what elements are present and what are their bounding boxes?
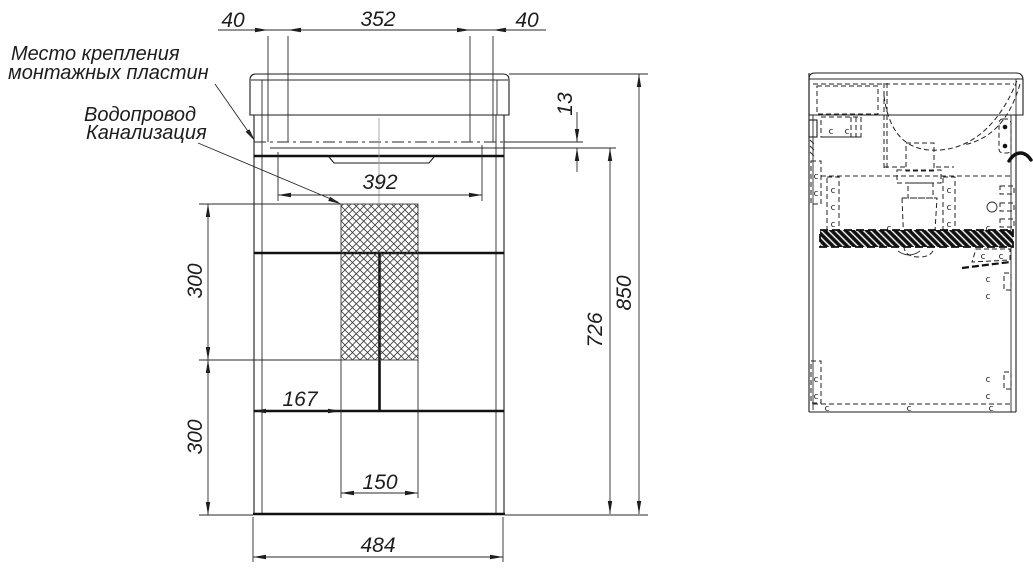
basin-bowl-hidden-contour: [817, 78, 1020, 170]
screw-mark: c: [824, 404, 829, 414]
screw-mark: c: [813, 189, 818, 199]
vanity-technical-drawing-page: 40 352 40 392 13 300 300 726 850 167 150…: [0, 0, 1033, 569]
dim-top-margin-left: 40: [221, 9, 245, 32]
plumbing-service-zone: [341, 204, 418, 498]
screw-mark: c: [988, 404, 993, 414]
dim-top-margin-right: 40: [515, 9, 539, 32]
dim-overall-height: 850: [613, 275, 636, 310]
screw-mark: c: [998, 252, 1003, 262]
label-plumbing-line2: Канализация: [86, 122, 207, 144]
screw-mark: c: [985, 375, 990, 385]
cam-lock: [987, 202, 997, 212]
screw-mark: c: [980, 252, 985, 262]
dim-service-upper: 300: [184, 263, 207, 298]
dim-opening-width: 392: [362, 171, 397, 194]
label-mounting-plates-line2: монтажных пластин: [8, 62, 209, 84]
screw-mark: c: [830, 186, 835, 196]
screw-mark: c: [985, 275, 990, 285]
drawer-slide-band: c c: [820, 230, 1013, 268]
screw-mark: c: [830, 203, 835, 213]
leader-mounting-plates: [215, 84, 252, 137]
hatched-area: [341, 204, 418, 360]
front-view: [250, 74, 616, 514]
leader-plumbing: [198, 143, 338, 202]
screw-mark: c: [813, 172, 818, 182]
dim-carcass-height: 726: [584, 312, 607, 347]
screw-mark: c: [946, 220, 951, 230]
side-view: c c c c c c c c c: [809, 73, 1031, 414]
screw-mark: c: [813, 375, 818, 385]
screw-mark: c: [828, 127, 833, 137]
dim-service-width: 150: [362, 471, 397, 494]
screw-mark: c: [946, 203, 951, 213]
dim-service-lower: 300: [184, 419, 207, 454]
screw-mark: c: [830, 220, 835, 230]
hook-clip: [1009, 153, 1031, 161]
dim-basin-drop: 13: [554, 92, 577, 116]
lower-fasteners: c c c c c c c c c: [811, 273, 1011, 414]
side-basin-slab: [809, 73, 1023, 115]
screw-mark: c: [985, 392, 990, 402]
handle-recess: [329, 157, 434, 163]
screw-mark: c: [985, 292, 990, 302]
technical-drawing-canvas: 40 352 40 392 13 300 300 726 850 167 150…: [0, 0, 1033, 569]
screw-mark: c: [844, 127, 849, 137]
screw-mark: c: [813, 392, 818, 402]
screw-mark: c: [906, 404, 911, 414]
screw-mark: c: [946, 186, 951, 196]
dim-left-offset: 167: [282, 388, 318, 411]
cabinet-body: [253, 115, 616, 514]
callout-labels: Место крепления монтажных пластин Водопр…: [8, 43, 338, 202]
dim-overall-width: 484: [360, 534, 395, 557]
dim-top-span: 352: [360, 8, 395, 31]
mounting-hardware: c c: [809, 117, 1031, 161]
